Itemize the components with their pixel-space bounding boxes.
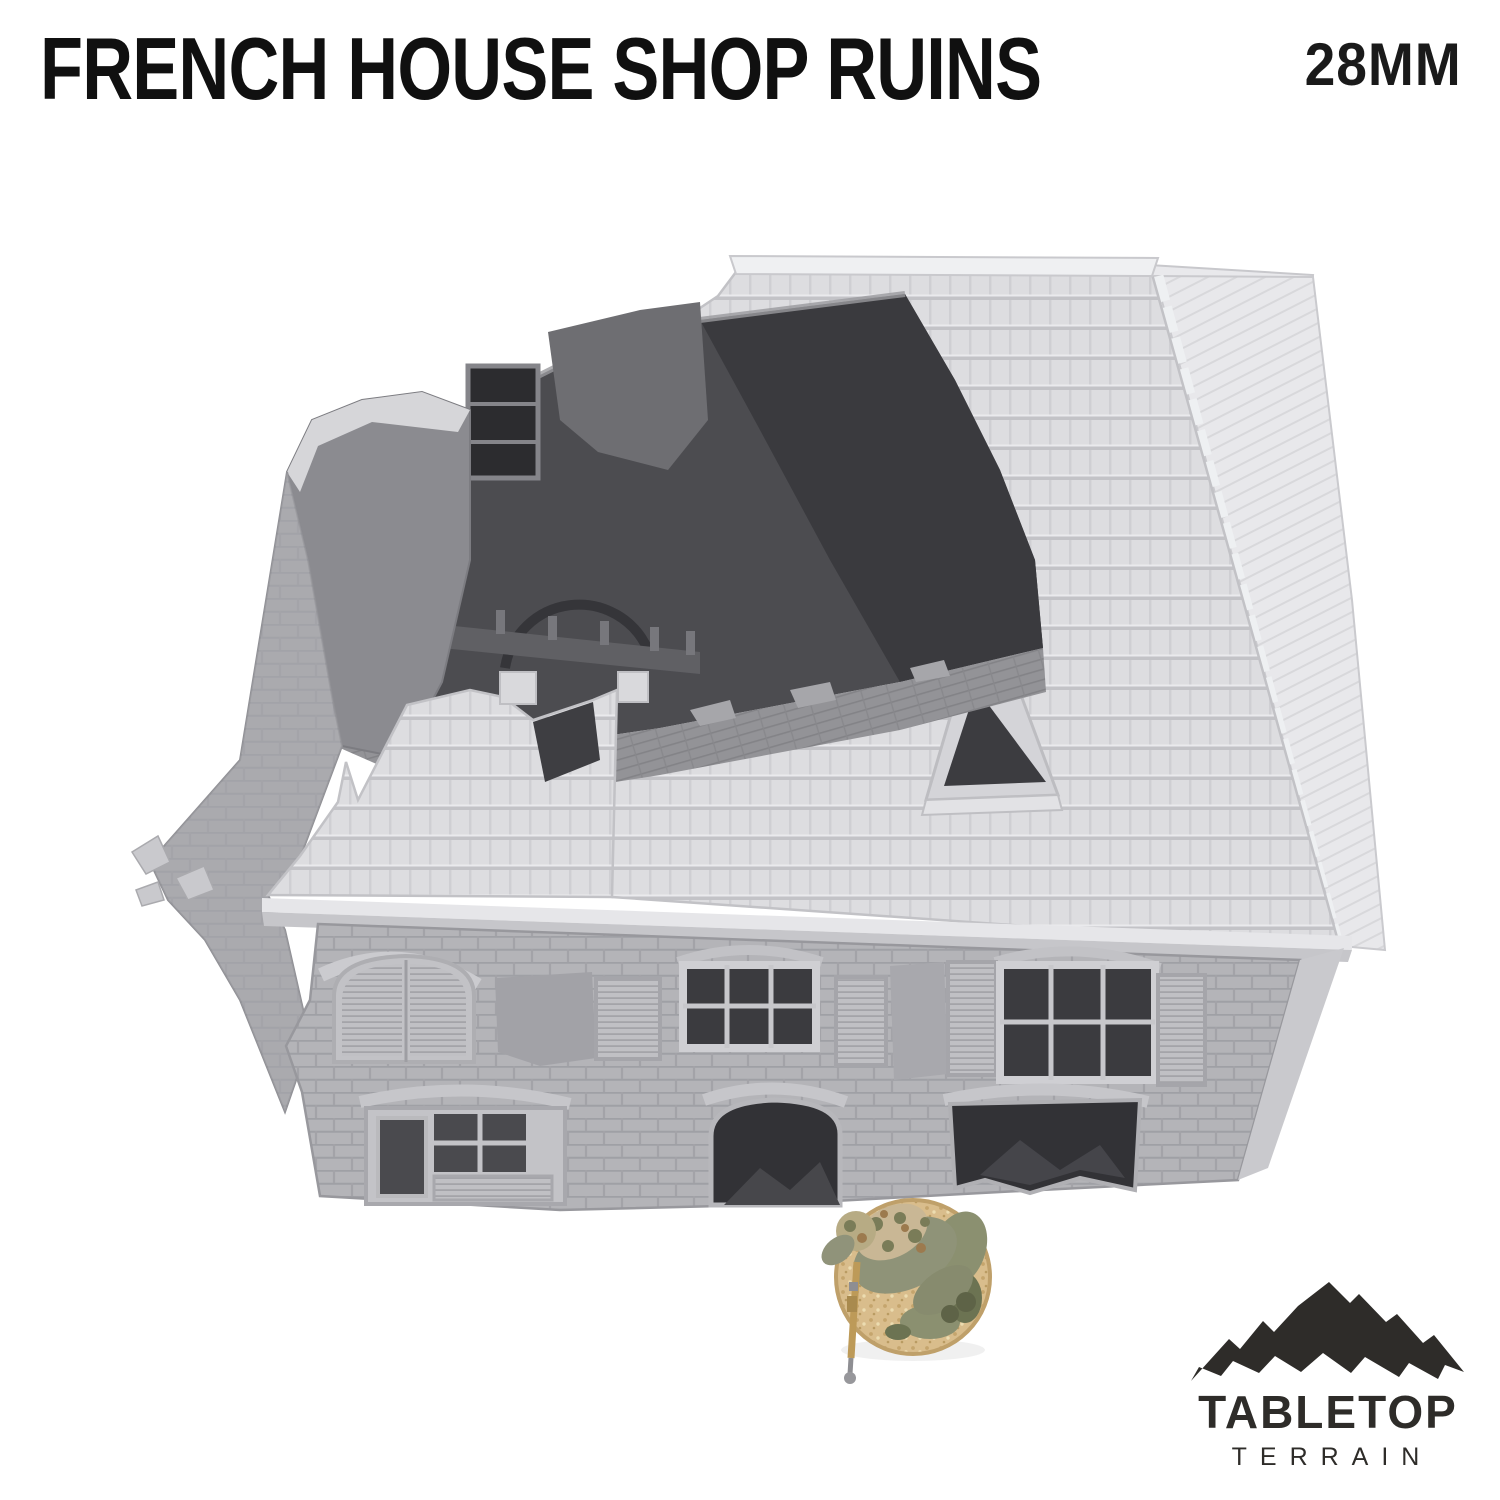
lower-window-framed xyxy=(360,1090,570,1204)
facade-damage-patch-2 xyxy=(890,962,948,1080)
interior-window-frame xyxy=(468,366,538,478)
scale-miniature xyxy=(816,1192,998,1384)
mountain-range-icon xyxy=(1183,1273,1473,1383)
upper-shutter-open-a xyxy=(596,979,660,1059)
front-facade xyxy=(286,924,1344,1210)
brand-line1: TABLETOP xyxy=(1178,1385,1478,1439)
upper-shutter-open-c xyxy=(948,962,996,1075)
upper-window-open xyxy=(678,950,822,1048)
chimney-stub-2 xyxy=(618,672,648,702)
facade-damage-patch xyxy=(495,972,596,1066)
soldier-boot-2 xyxy=(941,1305,959,1323)
upper-window-arched-shuttered xyxy=(321,956,478,1062)
brand-line2: TERRAIN xyxy=(1186,1443,1478,1472)
upper-shutter-open-b xyxy=(836,977,886,1065)
chimney-stub xyxy=(500,672,536,704)
main-roof-ridge-cap xyxy=(730,256,1158,276)
house-model xyxy=(132,256,1385,1210)
brand-logo: TABLETOP TERRAIN xyxy=(1178,1273,1478,1472)
upper-shutter-open-d xyxy=(1158,975,1205,1085)
soldier-boot xyxy=(956,1292,976,1312)
page: FRENCH HOUSE SHOP RUINS 28MM xyxy=(0,0,1500,1500)
lower-window-ruined xyxy=(944,1089,1148,1193)
